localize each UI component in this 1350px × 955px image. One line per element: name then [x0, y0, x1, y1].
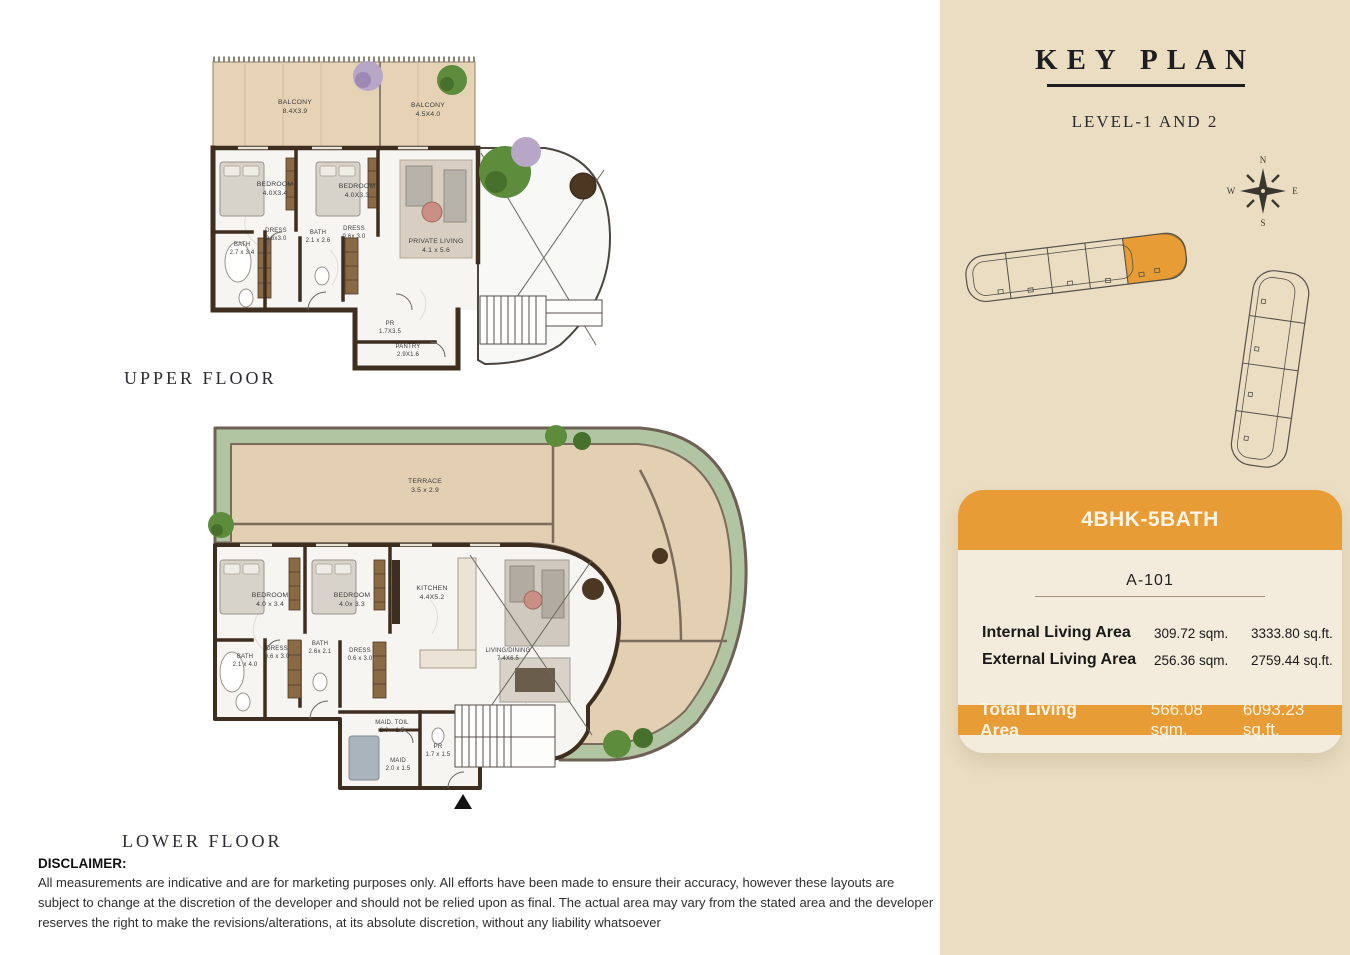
keyplan-title-underline — [1047, 84, 1245, 87]
room-label: MAID — [390, 758, 406, 764]
disclaimer: DISCLAIMER: All measurements are indicat… — [38, 856, 936, 933]
brochure-page: BALCONY 8.4X3.9 BALCONY 4.5X4.0 BEDROOM … — [0, 0, 1350, 955]
upper-floor-title: UPPER FLOOR — [124, 368, 277, 389]
room-label: BATH — [312, 641, 328, 647]
keyplan-subtitle: LEVEL-1 AND 2 — [940, 112, 1350, 132]
unit-code-underline — [1035, 596, 1265, 597]
total-area-sqft: 6093.23 sq.ft. — [1243, 700, 1342, 740]
room-dims: 4.0X3.4 — [263, 190, 288, 197]
entry-arrow-icon — [454, 794, 472, 809]
room-label: DRESS — [266, 646, 288, 652]
room-label: MAID. TOIL — [375, 720, 409, 726]
room-label: BATH — [234, 242, 250, 248]
room-label: PR — [386, 321, 395, 327]
room-label: BALCONY — [411, 102, 445, 109]
total-area-row: Total Living Area 566.08 sqm. 6093.23 sq… — [958, 705, 1342, 735]
lower-stairs — [455, 705, 555, 767]
room-dims: 0.6 x 3.0 — [348, 656, 373, 662]
room-dims: 4.4X5.2 — [420, 594, 445, 601]
room-dims: 3.5 x 2.9 — [411, 487, 439, 494]
unit-code: A-101 — [958, 572, 1342, 590]
room-label: BEDROOM — [252, 592, 289, 599]
room-dims: 4.1 x 5.6 — [422, 247, 450, 254]
room-dims: 2.1 x 2.6 — [306, 238, 331, 244]
column-circle — [570, 173, 596, 199]
room-label: PRIVATE LIVING — [408, 238, 463, 245]
room-label: BALCONY — [278, 99, 312, 106]
room-dims: 2.6x 2.1 — [309, 649, 332, 655]
internal-area-sqm: 309.72 sqm. — [1154, 626, 1228, 641]
room-label: BEDROOM — [334, 592, 371, 599]
room-dims: 4.0X3.3 — [345, 192, 370, 199]
room-dims: 8.4X3.9 — [283, 108, 308, 115]
total-area-sqm: 566.08 sqm. — [1151, 700, 1241, 740]
room-dims: 2.1 x 4.0 — [233, 662, 258, 668]
room-dims: 0.6x3.0 — [265, 236, 287, 242]
room-label: KITCHEN — [416, 585, 447, 592]
unit-type-header: 4BHK-5BATH — [958, 490, 1342, 550]
compass-icon: N E S W — [1227, 155, 1299, 228]
room-dims: 0.6x 3.0 — [343, 234, 366, 240]
keyplan-title: KEY PLAN — [940, 44, 1350, 77]
compass-w: W — [1227, 186, 1236, 196]
total-area-label: Total Living Area — [980, 699, 1115, 741]
lower-floor-title: LOWER FLOOR — [122, 831, 283, 852]
internal-area-row: Internal Living Area 309.72 sqm. 3333.80… — [958, 624, 1342, 644]
external-area-row: External Living Area 256.36 sqm. 2759.44… — [958, 651, 1342, 671]
lower-floor-plan: TERRACE 3.5 x 2.9 BEDROOM 4.0 x 3.4 BEDR… — [180, 415, 760, 815]
compass-e: E — [1292, 186, 1298, 196]
room-label: BATH — [310, 230, 326, 236]
room-dims: 7.4X6.5 — [497, 656, 520, 662]
room-dims: 1.7X3.5 — [379, 329, 402, 335]
internal-area-label: Internal Living Area — [982, 624, 1131, 642]
unit-info-card: 4BHK-5BATH A-101 Internal Living Area 30… — [958, 490, 1342, 753]
room-label: PR — [434, 744, 443, 750]
external-area-sqm: 256.36 sqm. — [1154, 653, 1228, 668]
room-dims: 0.6 x 3.0 — [265, 654, 290, 660]
room-label: TERRACE — [408, 478, 442, 485]
room-label: BEDROOM — [339, 183, 376, 190]
keyplan-map: N E S W — [940, 140, 1350, 490]
internal-area-sqft: 3333.80 sq.ft. — [1251, 626, 1333, 641]
keyplan-sidebar: KEY PLAN LEVEL-1 AND 2 N E S W — [940, 0, 1350, 955]
room-dims: 1.7 x 1.5 — [426, 752, 451, 758]
upper-stairs — [480, 296, 602, 344]
keyplan-building-b — [1229, 268, 1312, 470]
external-area-sqft: 2759.44 sq.ft. — [1251, 653, 1333, 668]
room-dims: 2.9X1.6 — [397, 352, 420, 358]
keyplan-building-a — [964, 231, 1189, 304]
room-label: BEDROOM — [257, 181, 294, 188]
room-dims: 2.7 x 3.4 — [230, 250, 255, 256]
room-dims: 2.0 x 1.5 — [386, 766, 411, 772]
upper-floor-plan: BALCONY 8.4X3.9 BALCONY 4.5X4.0 BEDROOM … — [130, 40, 670, 390]
compass-s: S — [1260, 218, 1265, 228]
room-dims: 2.0 x 1.5 — [380, 728, 405, 734]
room-label: BATH — [237, 654, 253, 660]
room-label: PANTRY — [396, 344, 421, 350]
room-dims: 4.0x 3.3 — [339, 601, 365, 608]
compass-n: N — [1260, 155, 1267, 165]
room-label: DRESS — [265, 228, 287, 234]
disclaimer-body: All measurements are indicative and are … — [38, 873, 936, 933]
room-label: DRESS — [343, 226, 365, 232]
room-dims: 4.5X4.0 — [416, 111, 441, 118]
room-label: DRESS — [349, 648, 371, 654]
external-area-label: External Living Area — [982, 651, 1136, 669]
room-dims: 4.0 x 3.4 — [256, 601, 284, 608]
room-label: LIVING/DINING — [486, 648, 531, 654]
disclaimer-heading: DISCLAIMER: — [38, 856, 936, 871]
